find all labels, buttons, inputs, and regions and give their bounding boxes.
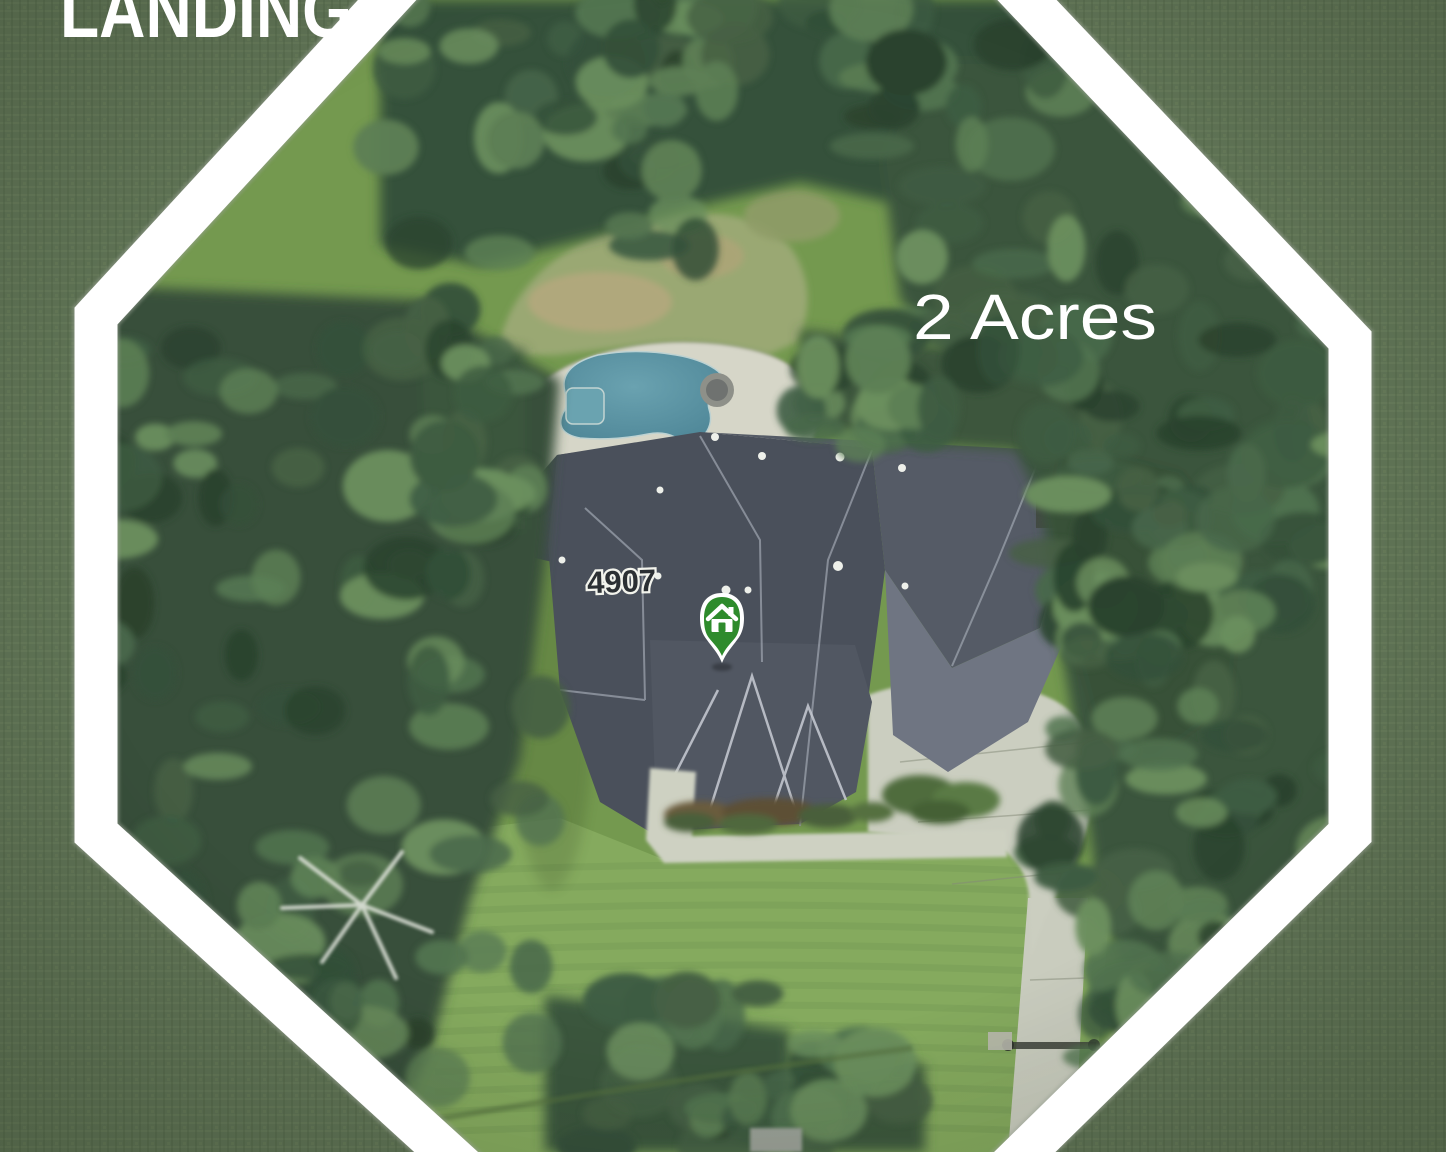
aerial-property-photo: 4907 LANDING 2 Acres: [0, 0, 1446, 1152]
spa: [566, 388, 604, 424]
aerial-photo-canvas: 4907 LANDING 2 Acres: [0, 0, 1446, 1152]
acreage-label: 2 Acres: [913, 281, 1157, 353]
gate-pillar: [988, 1032, 1012, 1050]
small-structure: [750, 1128, 802, 1152]
subdivision-name-text: LANDING: [60, 0, 352, 54]
house-number-label: 4907: [587, 563, 657, 600]
pin-shadow: [712, 663, 732, 671]
